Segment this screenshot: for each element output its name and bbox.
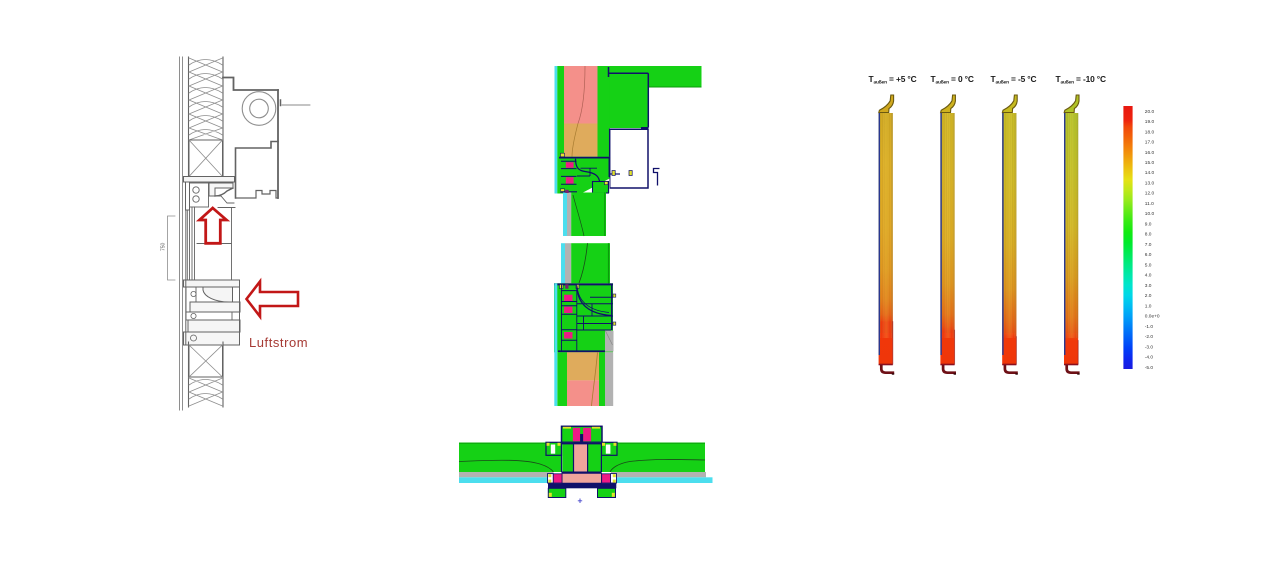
- svg-text:18.0: 18.0: [1145, 129, 1155, 135]
- svg-text:-3.0: -3.0: [1145, 344, 1154, 350]
- svg-text:11.0: 11.0: [1145, 201, 1154, 207]
- svg-text:750: 750: [161, 242, 167, 251]
- svg-text:20.0: 20.0: [1145, 109, 1155, 115]
- svg-text:17.0: 17.0: [1145, 140, 1155, 146]
- svg-text:6.0: 6.0: [1145, 252, 1152, 258]
- svg-text:19.0: 19.0: [1145, 119, 1155, 125]
- svg-text:0.0e+0: 0.0e+0: [1145, 314, 1160, 320]
- svg-text:13.0: 13.0: [1145, 181, 1155, 187]
- svg-text:1.0: 1.0: [1145, 303, 1152, 309]
- svg-text:2.0: 2.0: [1145, 293, 1152, 299]
- svg-text:14.0: 14.0: [1145, 170, 1155, 176]
- svg-text:12.0: 12.0: [1145, 191, 1155, 197]
- svg-text:10.0: 10.0: [1145, 211, 1155, 217]
- svg-text:7.0: 7.0: [1145, 242, 1152, 248]
- svg-text:-4.0: -4.0: [1145, 355, 1154, 361]
- svg-text:15.0: 15.0: [1145, 160, 1155, 166]
- svg-text:-5.0: -5.0: [1145, 365, 1154, 371]
- svg-text:16.0: 16.0: [1145, 150, 1155, 156]
- svg-text:5.0: 5.0: [1145, 262, 1152, 268]
- svg-text:-1.0: -1.0: [1145, 324, 1154, 330]
- svg-text:3.0: 3.0: [1145, 283, 1152, 289]
- svg-text:4.0: 4.0: [1145, 273, 1152, 279]
- svg-text:9.0: 9.0: [1145, 221, 1152, 227]
- svg-text:-2.0: -2.0: [1145, 334, 1154, 340]
- svg-text:Luftstrom: Luftstrom: [249, 335, 308, 350]
- svg-text:8.0: 8.0: [1145, 232, 1152, 238]
